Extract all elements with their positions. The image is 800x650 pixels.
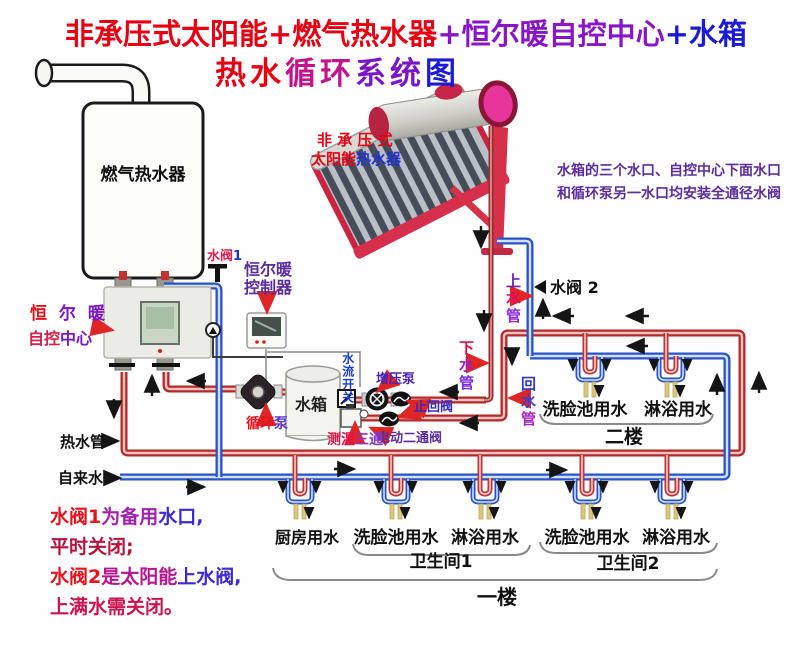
floor2-label: 二楼 <box>605 427 643 449</box>
solar-label-line2: 太阳能热水器 <box>311 151 401 168</box>
floor2-fixture2-label: 淋浴用水 <box>644 401 712 421</box>
bath2-fixture1-label: 洗脸池用水 <box>545 529 630 549</box>
floor1-label: 一楼 <box>477 586 517 609</box>
flow-switch-label: 水流开关 <box>340 352 354 404</box>
note-bottom-line1: 水阀1为备用水口, <box>50 507 203 529</box>
exhaust-pipe-opening <box>36 60 52 86</box>
control-center-label-line2: 自控中心 <box>28 330 92 348</box>
motor-icon <box>360 410 368 418</box>
up-pipe-label: 上水管 <box>505 273 522 325</box>
note-bottom-line3: 水阀2是太阳能上水阀, <box>50 567 241 589</box>
solar-label-line1: 非 承 压 式 <box>317 132 393 149</box>
note-bottom-line2: 平时关闭; <box>50 537 134 559</box>
control-center-label-line1: 恒 尔 暖 <box>30 305 108 325</box>
down-pipe-label: 下水管 <box>458 340 475 392</box>
check-valve-1 <box>391 392 411 407</box>
page-title: 非承压式太阳能+燃气热水器+恒尔暖自控中心+水箱 <box>65 18 747 51</box>
valve2-symbol <box>534 280 546 294</box>
booster-pump-label: 增压泵 <box>376 373 415 388</box>
valve1-symbol <box>208 264 227 282</box>
tap-water-label: 自来水 <box>58 470 103 487</box>
controller-label: 恒尔暖控制器 <box>244 261 292 298</box>
bath1-fixture2-label: 淋浴用水 <box>451 529 519 549</box>
note-bottom-line4: 上满水需关闭。 <box>50 597 183 619</box>
bath1-fixture1-label: 洗脸池用水 <box>354 529 439 549</box>
gas-heater-label: 燃气热水器 <box>83 166 203 186</box>
page-subtitle: 热水循环系统图 <box>215 57 460 93</box>
bathroom1-label: 卫生间1 <box>410 553 473 573</box>
temp-tee-label: 测温三通 <box>327 432 383 448</box>
valve2-label: 水阀 2 <box>550 279 599 297</box>
tank-label: 水箱 <box>295 396 327 414</box>
gas-heater-body <box>83 103 203 278</box>
return-pipe-label: 回水管 <box>520 376 537 428</box>
circulation-pump-label: 循环泵 <box>246 416 288 432</box>
bathroom2-label: 卫生间2 <box>597 555 660 575</box>
hot-water-system-diagram: 非承压式太阳能+燃气热水器+恒尔暖自控中心+水箱 热水循环系统图 燃气热水器 非… <box>0 0 800 650</box>
motor-valve-label: 电动二通阀 <box>377 432 442 447</box>
floor2-fixture1-label: 洗脸池用水 <box>543 401 628 421</box>
check-valve-label: 止回阀 <box>414 401 453 416</box>
hot-pipe-label: 热水管 <box>60 434 105 451</box>
circulation-pump <box>236 372 282 412</box>
check-valve-2 <box>379 412 399 427</box>
valve1-label: 水阀1 <box>207 250 242 265</box>
bath2-fixture2-label: 淋浴用水 <box>642 529 710 549</box>
kitchen-label: 厨房用水 <box>275 529 339 547</box>
note-right: 水箱的三个水口、自控中心下面水口和循环泵另一水口均安装全通径水阀 <box>557 160 781 206</box>
